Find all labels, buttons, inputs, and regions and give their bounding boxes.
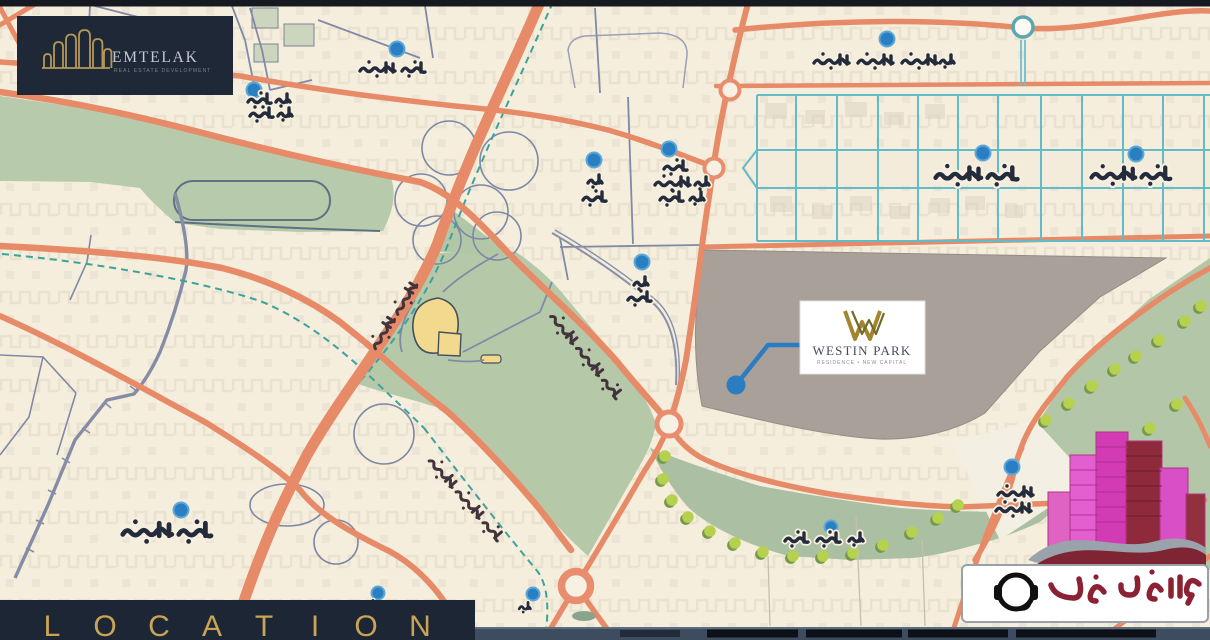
svg-text:RESIDENCE • NEW CAPITAL: RESIDENCE • NEW CAPITAL xyxy=(817,360,907,366)
svg-text:I: I xyxy=(311,610,319,640)
svg-text:O: O xyxy=(354,610,377,640)
svg-text:REAL ESTATE DEVELOPMENT: REAL ESTATE DEVELOPMENT xyxy=(114,68,211,74)
svg-text:O: O xyxy=(93,610,116,640)
svg-text:T: T xyxy=(255,610,273,640)
svg-text:L: L xyxy=(44,610,61,640)
svg-text:WESTIN PARK: WESTIN PARK xyxy=(812,343,911,358)
svg-text:N: N xyxy=(409,610,431,640)
svg-text:A: A xyxy=(202,610,222,640)
svg-text:C: C xyxy=(148,610,170,640)
svg-text:EMTELAK: EMTELAK xyxy=(112,49,199,66)
